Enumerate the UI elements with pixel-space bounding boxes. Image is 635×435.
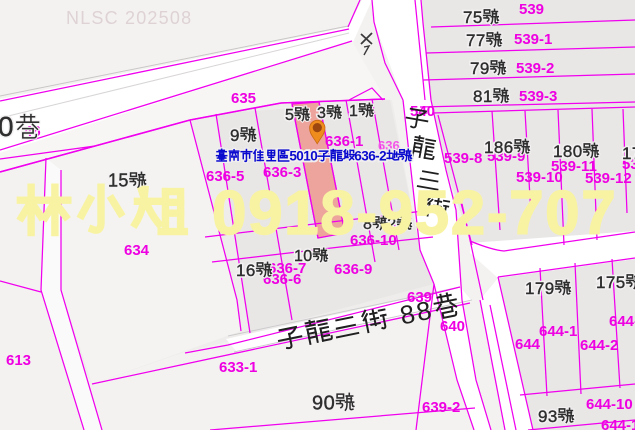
svg-text:3: 3 bbox=[548, 407, 557, 426]
svg-text:1: 1 bbox=[294, 248, 303, 265]
svg-text:644-10: 644-10 bbox=[586, 396, 633, 413]
svg-text:539: 539 bbox=[519, 1, 544, 18]
svg-text:2: 2 bbox=[379, 148, 387, 163]
svg-text:8: 8 bbox=[563, 142, 572, 161]
svg-text:644-2: 644-2 bbox=[580, 337, 618, 354]
svg-text:634: 634 bbox=[124, 242, 150, 259]
svg-text:0: 0 bbox=[310, 148, 318, 163]
svg-text:1: 1 bbox=[553, 142, 562, 161]
svg-text:9: 9 bbox=[545, 279, 554, 298]
svg-text:5: 5 bbox=[616, 273, 625, 292]
svg-text:9: 9 bbox=[312, 392, 323, 414]
svg-text:7: 7 bbox=[470, 59, 479, 78]
svg-text:539-2: 539-2 bbox=[516, 60, 554, 77]
svg-text:1: 1 bbox=[622, 144, 631, 163]
svg-text:9: 9 bbox=[538, 407, 547, 426]
svg-text:1: 1 bbox=[484, 138, 493, 157]
svg-text:539-3: 539-3 bbox=[519, 88, 557, 105]
svg-text:1: 1 bbox=[108, 171, 118, 191]
svg-text:5: 5 bbox=[118, 171, 128, 191]
svg-text:7: 7 bbox=[476, 31, 485, 50]
svg-text:539-8: 539-8 bbox=[444, 150, 482, 167]
svg-text:8: 8 bbox=[473, 87, 482, 106]
svg-text:633-1: 633-1 bbox=[219, 359, 257, 376]
svg-text:7: 7 bbox=[463, 8, 472, 27]
svg-text:7: 7 bbox=[466, 31, 475, 50]
svg-text:613: 613 bbox=[6, 352, 31, 369]
svg-text:9: 9 bbox=[230, 126, 239, 145]
svg-text:1: 1 bbox=[236, 261, 245, 280]
svg-text:639-2: 639-2 bbox=[422, 399, 460, 416]
svg-text:636-9: 636-9 bbox=[334, 261, 372, 278]
svg-text:1: 1 bbox=[349, 103, 358, 120]
svg-text:9: 9 bbox=[480, 59, 489, 78]
svg-text:640: 640 bbox=[440, 318, 465, 335]
svg-text:0: 0 bbox=[573, 142, 582, 161]
svg-text:6: 6 bbox=[246, 261, 255, 280]
svg-text:5: 5 bbox=[285, 107, 294, 124]
svg-text:635: 635 bbox=[231, 90, 256, 107]
svg-text:6: 6 bbox=[504, 138, 513, 157]
svg-text:3: 3 bbox=[317, 105, 326, 122]
svg-text:644-1: 644-1 bbox=[601, 417, 635, 430]
svg-text:0: 0 bbox=[324, 392, 335, 414]
svg-text:NLSC 202508: NLSC 202508 bbox=[66, 8, 192, 28]
svg-text:1: 1 bbox=[596, 273, 605, 292]
svg-text:7: 7 bbox=[535, 279, 544, 298]
svg-text:0: 0 bbox=[0, 111, 14, 142]
svg-text:1: 1 bbox=[525, 279, 534, 298]
svg-text:1: 1 bbox=[483, 87, 492, 106]
svg-text:8: 8 bbox=[494, 138, 503, 157]
svg-text:5: 5 bbox=[473, 8, 482, 27]
svg-text:0918-952-707: 0918-952-707 bbox=[212, 179, 617, 248]
svg-text:644-1: 644-1 bbox=[539, 323, 577, 340]
svg-text:644-: 644- bbox=[609, 313, 635, 330]
svg-text:539-1: 539-1 bbox=[514, 31, 552, 48]
svg-text:644: 644 bbox=[515, 336, 541, 353]
svg-text:7: 7 bbox=[606, 273, 615, 292]
svg-text:0: 0 bbox=[303, 248, 312, 265]
